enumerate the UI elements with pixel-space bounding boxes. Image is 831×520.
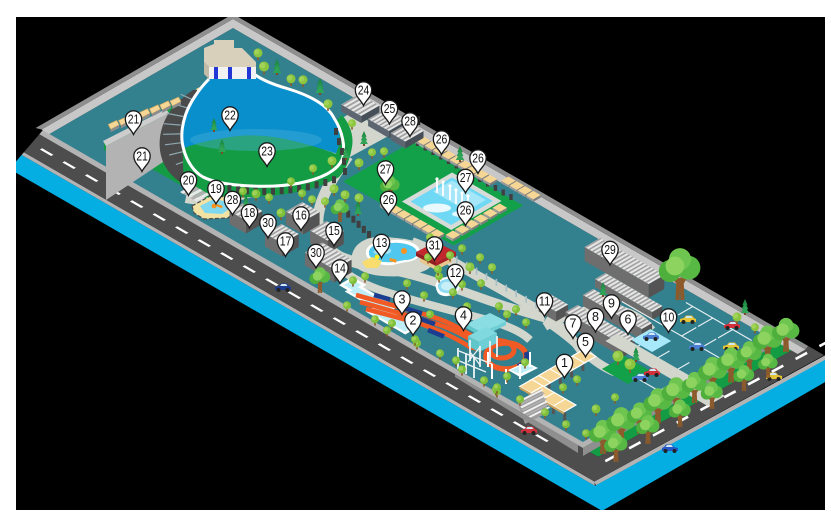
svg-text:8: 8 (592, 310, 599, 324)
svg-text:27: 27 (380, 162, 392, 176)
svg-text:26: 26 (436, 132, 448, 146)
svg-text:26: 26 (383, 193, 395, 207)
svg-text:21: 21 (128, 112, 140, 126)
svg-text:18: 18 (244, 206, 256, 220)
svg-text:24: 24 (358, 83, 370, 97)
svg-text:23: 23 (261, 144, 273, 158)
svg-text:1: 1 (561, 356, 568, 370)
svg-text:19: 19 (210, 182, 222, 196)
svg-text:3: 3 (399, 292, 406, 306)
svg-text:4: 4 (460, 308, 467, 322)
svg-text:11: 11 (539, 294, 551, 308)
svg-text:25: 25 (384, 102, 396, 116)
svg-text:13: 13 (376, 236, 388, 250)
svg-text:28: 28 (404, 114, 416, 128)
svg-text:30: 30 (262, 216, 274, 230)
svg-text:9: 9 (608, 296, 615, 310)
svg-text:26: 26 (460, 203, 472, 217)
svg-text:17: 17 (280, 234, 292, 248)
svg-text:6: 6 (625, 312, 632, 326)
svg-text:14: 14 (334, 261, 346, 275)
svg-text:20: 20 (183, 173, 195, 187)
svg-text:2: 2 (410, 313, 417, 327)
svg-text:5: 5 (582, 335, 589, 349)
svg-text:22: 22 (224, 108, 236, 122)
svg-text:28: 28 (227, 193, 239, 207)
svg-text:31: 31 (429, 238, 441, 252)
svg-text:10: 10 (663, 310, 675, 324)
svg-text:16: 16 (295, 208, 307, 222)
svg-text:15: 15 (328, 224, 340, 238)
svg-text:7: 7 (570, 316, 577, 330)
svg-text:29: 29 (604, 243, 616, 257)
svg-text:27: 27 (460, 171, 472, 185)
svg-text:21: 21 (136, 149, 148, 163)
svg-text:26: 26 (472, 151, 484, 165)
svg-text:12: 12 (450, 266, 462, 280)
svg-text:30: 30 (310, 246, 322, 260)
